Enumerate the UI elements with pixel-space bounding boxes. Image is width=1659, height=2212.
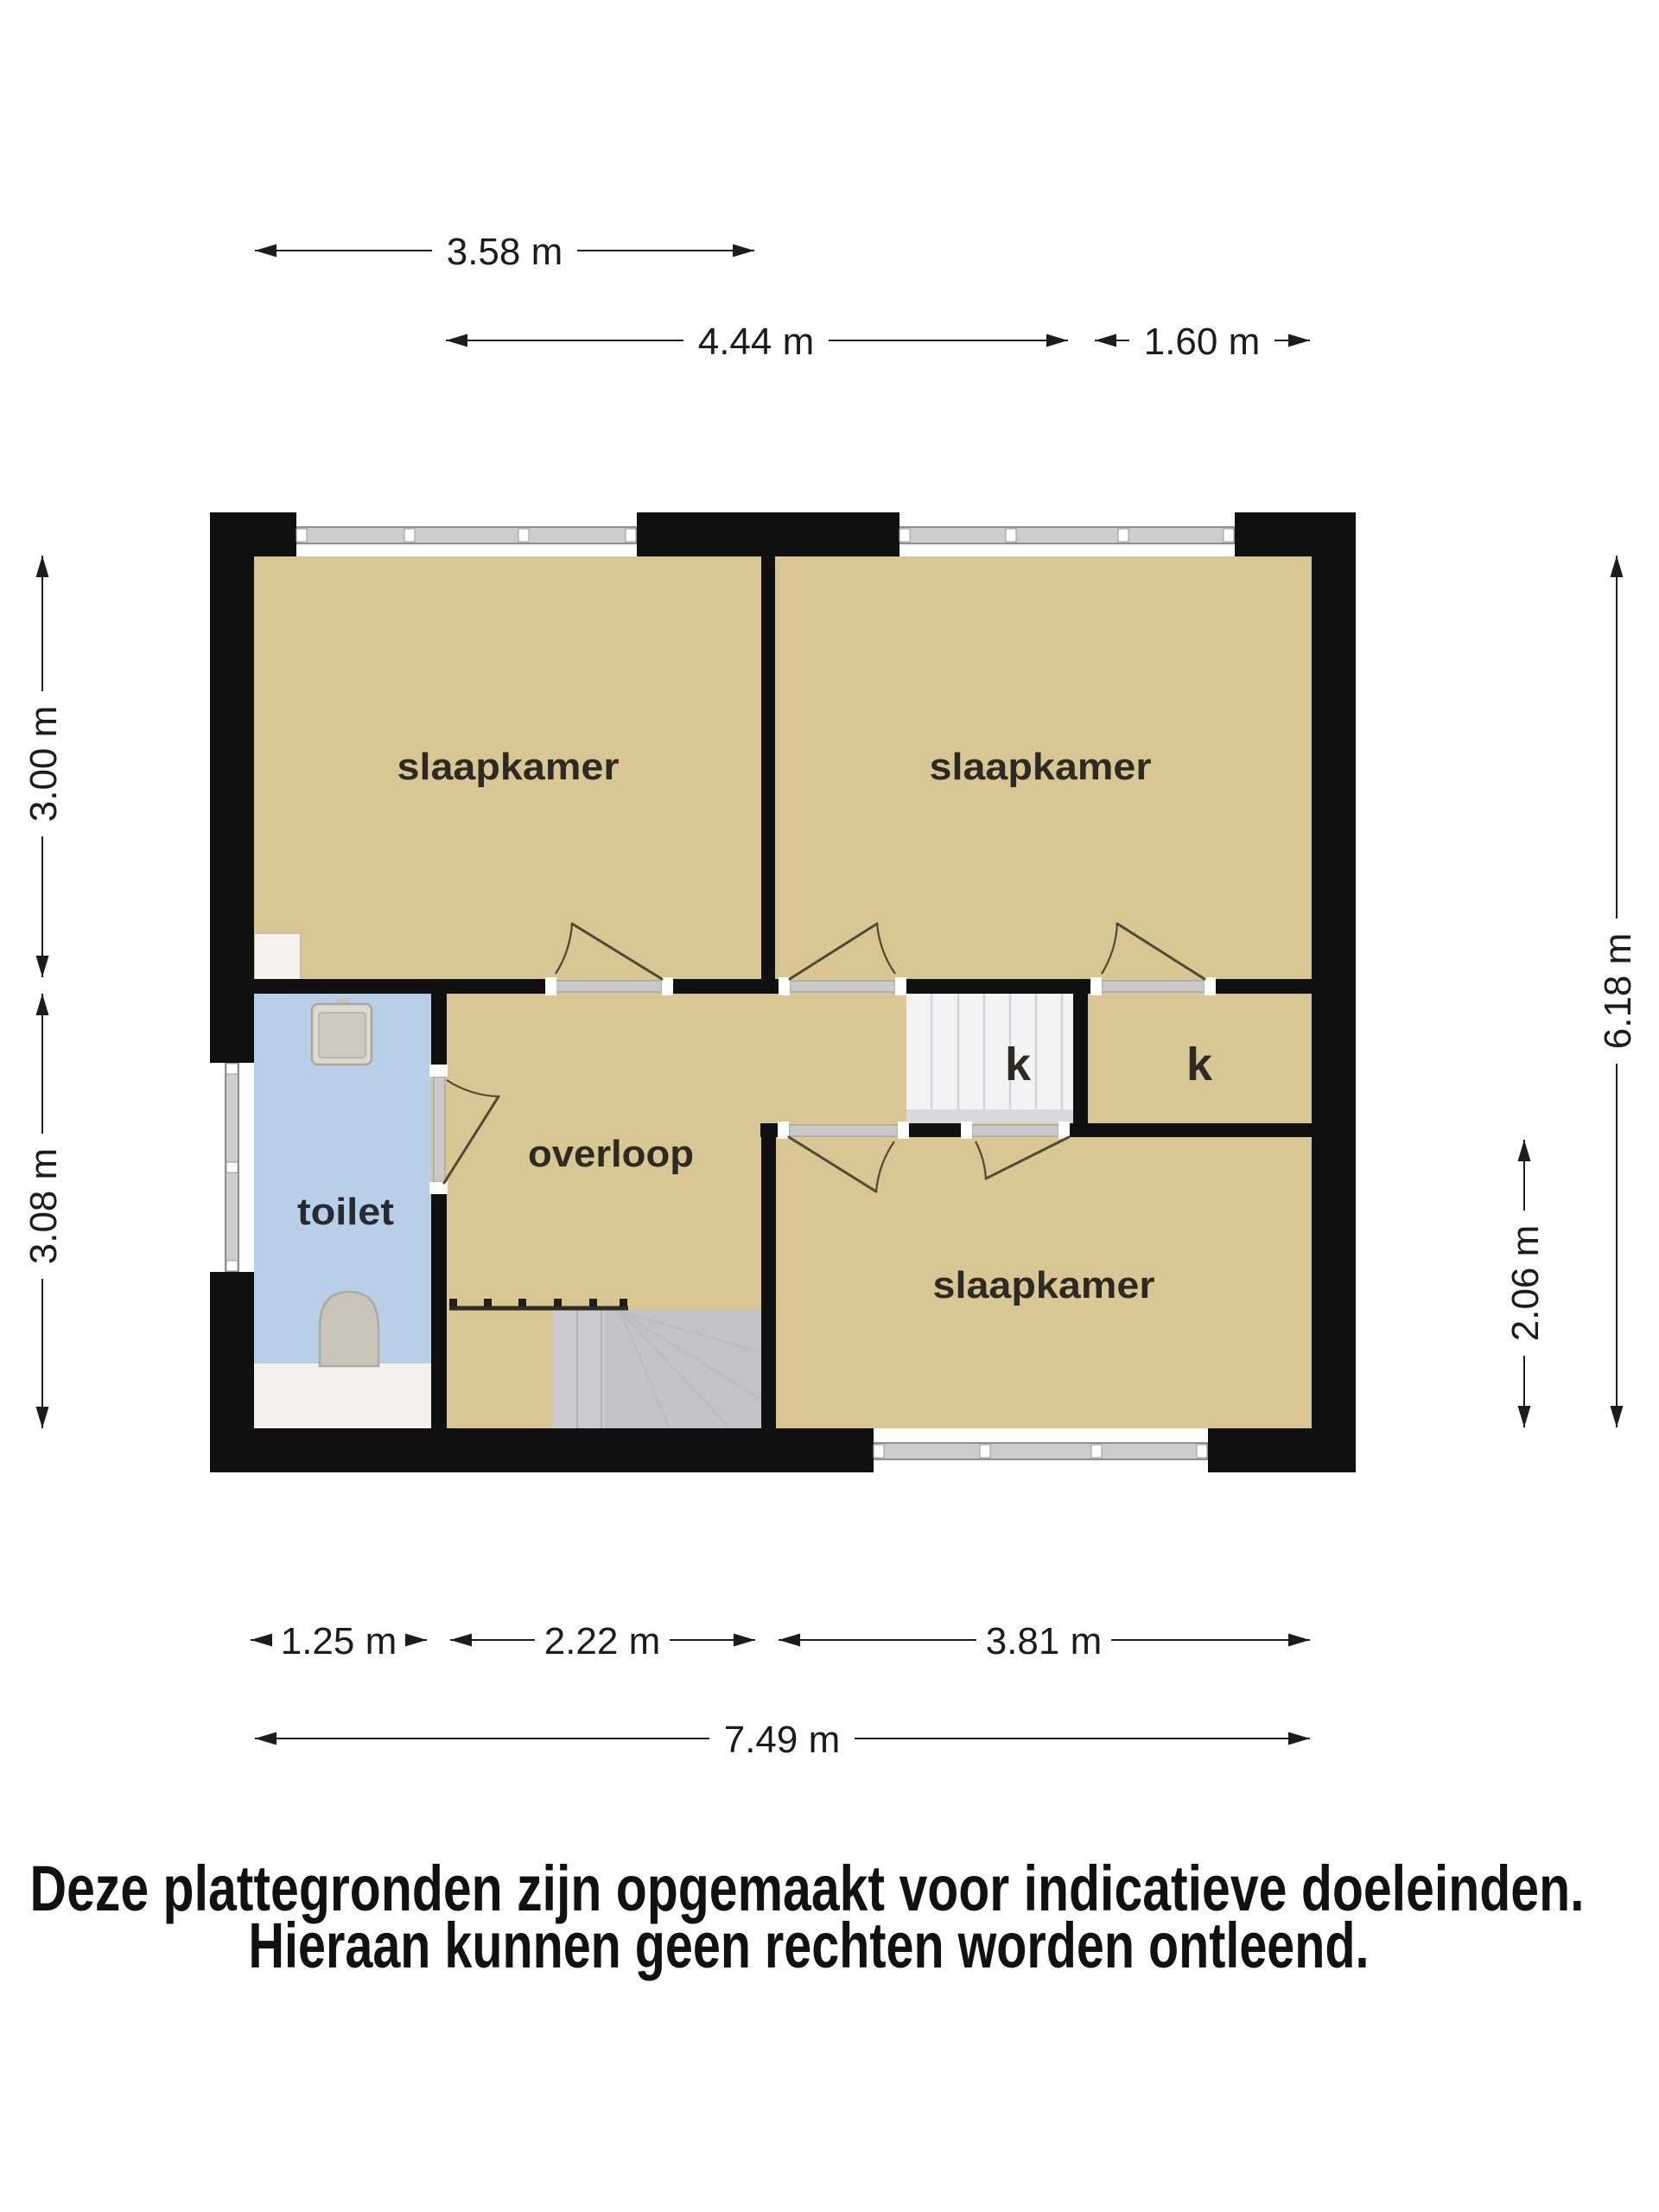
svg-text:Hieraan kunnen geen rechten wo: Hieraan kunnen geen rechten worden ontle… — [249, 1910, 1370, 1981]
svg-text:4.44 m: 4.44 m — [698, 321, 815, 363]
svg-text:1.25 m: 1.25 m — [281, 1620, 397, 1662]
svg-text:slaapkamer: slaapkamer — [930, 746, 1152, 788]
svg-text:2.06 m: 2.06 m — [1504, 1225, 1547, 1342]
svg-text:toilet: toilet — [297, 1191, 394, 1233]
svg-text:slaapkamer: slaapkamer — [397, 746, 620, 788]
svg-text:slaapkamer: slaapkamer — [933, 1264, 1155, 1306]
svg-text:2.22 m: 2.22 m — [544, 1620, 661, 1662]
svg-text:3.58 m: 3.58 m — [447, 231, 563, 273]
svg-text:3.00 m: 3.00 m — [22, 706, 65, 823]
svg-text:6.18 m: 6.18 m — [1597, 933, 1639, 1050]
svg-text:1.60 m: 1.60 m — [1144, 321, 1261, 363]
svg-text:3.81 m: 3.81 m — [986, 1620, 1103, 1662]
svg-text:k: k — [1005, 1039, 1032, 1090]
svg-text:3.08 m: 3.08 m — [22, 1148, 65, 1265]
svg-text:7.49 m: 7.49 m — [724, 1719, 841, 1761]
svg-text:k: k — [1186, 1039, 1213, 1090]
svg-text:overloop: overloop — [528, 1133, 694, 1175]
